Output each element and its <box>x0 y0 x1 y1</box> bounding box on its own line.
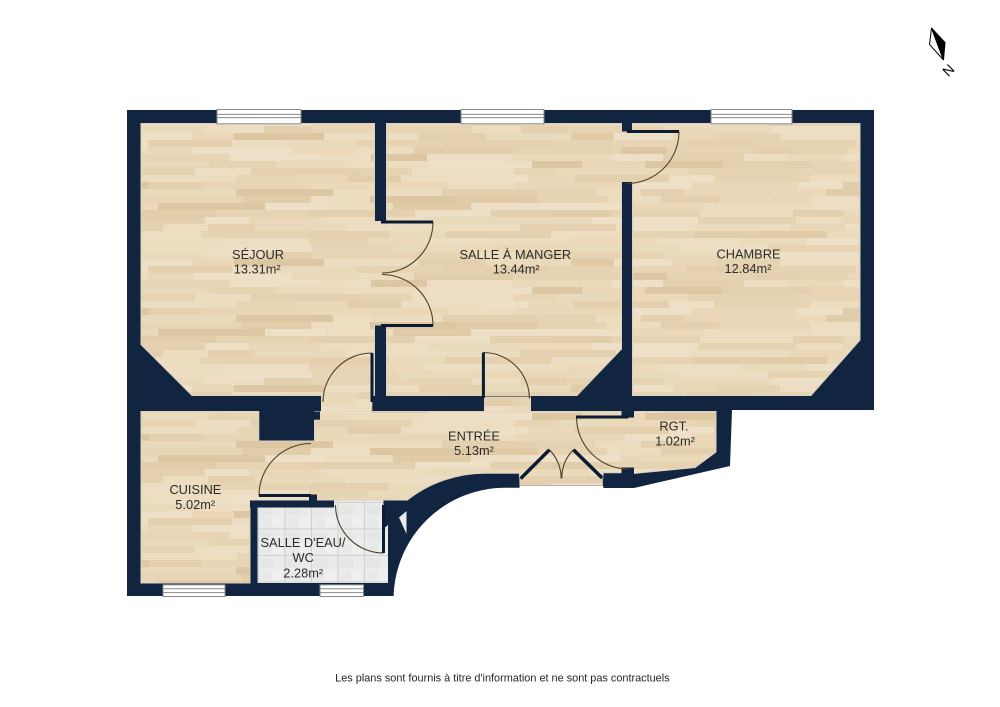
svg-text:SÉJOUR: SÉJOUR <box>232 247 284 262</box>
svg-text:CUISINE: CUISINE <box>169 482 221 497</box>
svg-text:5.13m²: 5.13m² <box>454 443 495 458</box>
svg-text:CHAMBRE: CHAMBRE <box>717 247 781 262</box>
svg-text:2.28m²: 2.28m² <box>283 566 324 581</box>
svg-text:ENTRÉE: ENTRÉE <box>448 428 500 443</box>
svg-text:13.31m²: 13.31m² <box>234 262 282 277</box>
svg-text:12.84m²: 12.84m² <box>725 261 773 276</box>
svg-text:SALLE À MANGER: SALLE À MANGER <box>459 247 571 262</box>
svg-text:Les plans sont fournis à titre: Les plans sont fournis à titre d'informa… <box>335 673 670 685</box>
svg-text:WC: WC <box>293 550 314 565</box>
svg-text:5.02m²: 5.02m² <box>175 497 216 512</box>
svg-text:RGT.: RGT. <box>659 419 688 434</box>
svg-text:1.02m²: 1.02m² <box>655 433 696 448</box>
svg-text:13.44m²: 13.44m² <box>493 262 541 277</box>
svg-text:SALLE D'EAU/: SALLE D'EAU/ <box>261 535 346 550</box>
